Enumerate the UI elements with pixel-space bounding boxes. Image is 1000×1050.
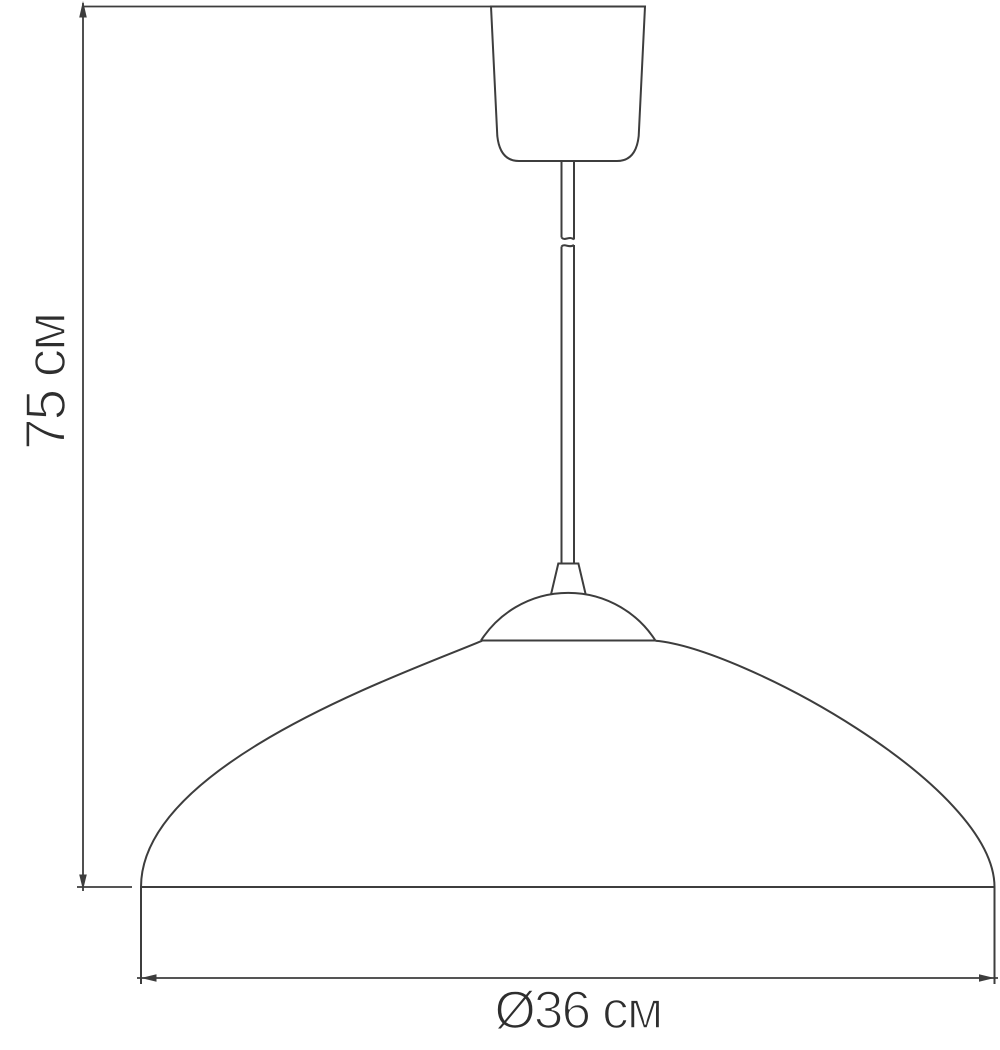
svg-text:Ø36 см: Ø36 см bbox=[494, 981, 661, 1040]
svg-text:75 см: 75 см bbox=[14, 314, 78, 450]
